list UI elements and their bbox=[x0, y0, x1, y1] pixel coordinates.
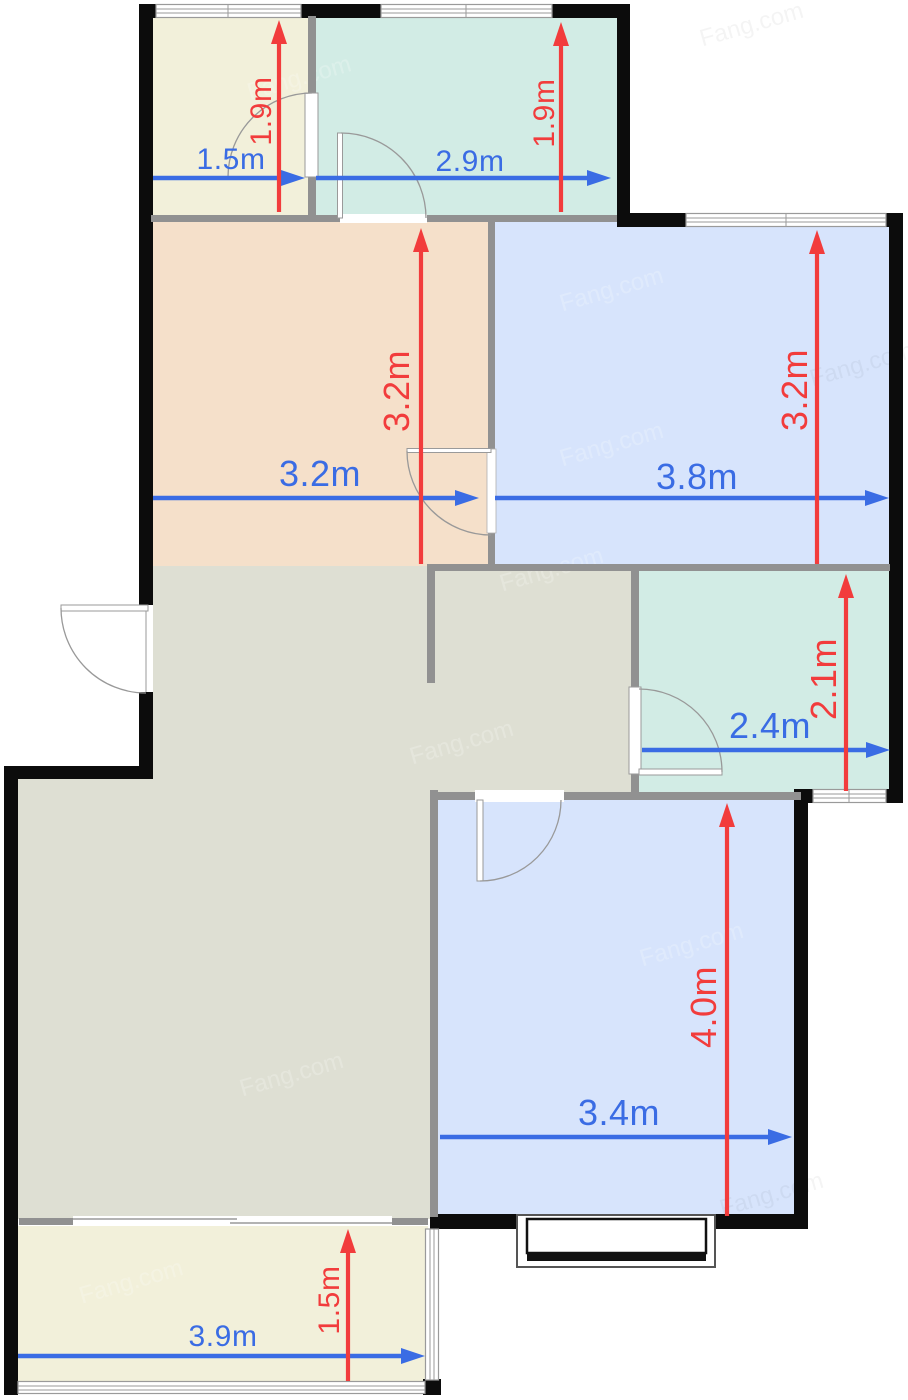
svg-text:4.0m: 4.0m bbox=[683, 966, 724, 1048]
svg-text:3.8m: 3.8m bbox=[656, 456, 738, 497]
svg-text:3.2m: 3.2m bbox=[376, 350, 417, 432]
svg-text:3.2m: 3.2m bbox=[279, 453, 361, 494]
svg-text:2.4m: 2.4m bbox=[729, 705, 811, 746]
svg-text:1.5m: 1.5m bbox=[196, 143, 265, 176]
svg-text:3.4m: 3.4m bbox=[578, 1092, 660, 1133]
svg-text:1.9m: 1.9m bbox=[528, 78, 561, 147]
svg-text:3.2m: 3.2m bbox=[774, 349, 815, 431]
svg-text:3.9m: 3.9m bbox=[188, 1320, 257, 1353]
svg-text:1.9m: 1.9m bbox=[245, 76, 278, 145]
svg-text:1.5m: 1.5m bbox=[313, 1265, 346, 1334]
svg-text:2.9m: 2.9m bbox=[435, 145, 504, 178]
svg-text:2.1m: 2.1m bbox=[803, 638, 844, 720]
